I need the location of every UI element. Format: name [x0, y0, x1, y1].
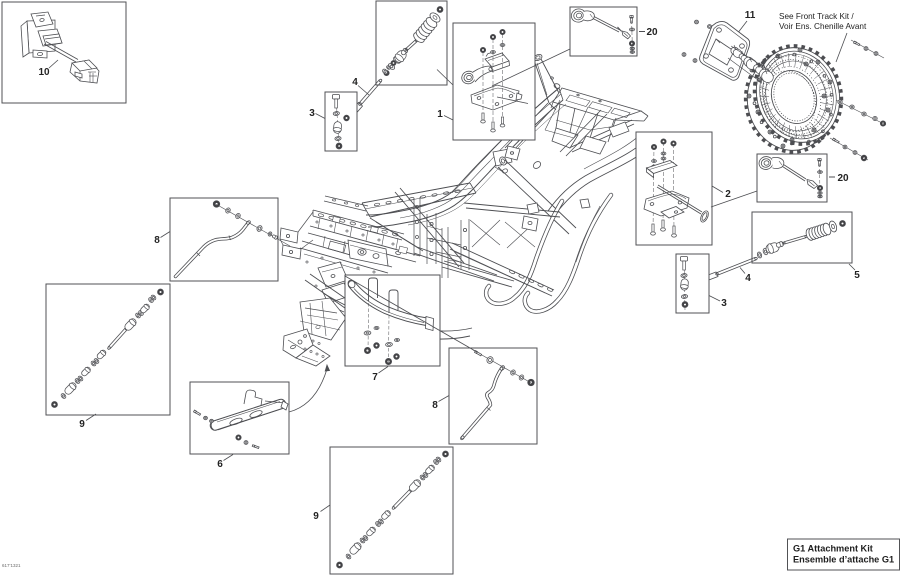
svg-text:G1 Attachment Kit: G1 Attachment Kit — [793, 544, 873, 554]
svg-text:8: 8 — [432, 400, 438, 411]
svg-text:6: 6 — [217, 459, 223, 470]
svg-text:3: 3 — [721, 298, 727, 309]
svg-text:4: 4 — [745, 273, 751, 284]
svg-text:See Front Track Kit /: See Front Track Kit / — [779, 12, 854, 21]
svg-text:3: 3 — [309, 108, 315, 119]
svg-text:1: 1 — [437, 109, 443, 120]
svg-text:5: 5 — [854, 270, 860, 281]
svg-text:4: 4 — [352, 77, 358, 88]
svg-text:2: 2 — [725, 189, 731, 200]
svg-text:Ensemble d’attache G1: Ensemble d’attache G1 — [793, 555, 894, 565]
svg-text:9: 9 — [79, 419, 85, 430]
svg-text:9: 9 — [313, 511, 319, 522]
svg-text:617’1321: 617’1321 — [2, 563, 21, 568]
svg-text:8: 8 — [154, 235, 160, 246]
svg-text:20: 20 — [646, 27, 658, 38]
svg-text:7: 7 — [372, 372, 378, 383]
svg-text:11: 11 — [745, 10, 756, 21]
svg-text:20: 20 — [837, 173, 849, 184]
svg-text:Voir Ens. Chenille Avant: Voir Ens. Chenille Avant — [779, 22, 867, 31]
svg-text:10: 10 — [38, 67, 50, 78]
